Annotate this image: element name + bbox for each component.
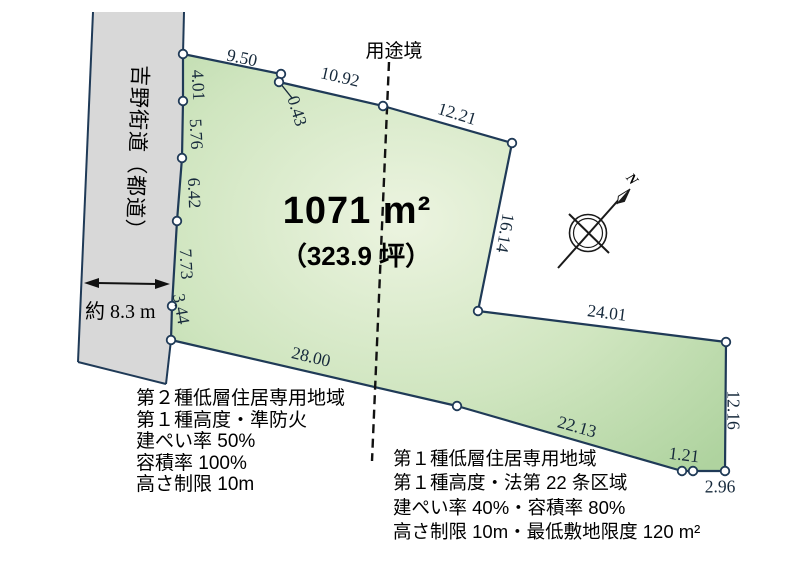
vertex-marker: [178, 154, 187, 163]
dim-left-1: 4.01: [187, 69, 210, 101]
zoning-left-line: 第２種低層住居専用地域: [136, 388, 345, 410]
vertex-marker: [179, 50, 188, 59]
vertex-marker: [173, 217, 182, 226]
vertex-marker: [508, 139, 517, 148]
vertex-marker: [275, 78, 284, 87]
vertex-marker: [453, 402, 462, 411]
area-sqm-label: 1071 m²: [257, 190, 457, 233]
dim-corner-bottom: 2.96: [705, 477, 736, 498]
zoning-left-line: 容積率 100%: [136, 453, 345, 475]
area-tsubo-label: （323.9 坪）: [256, 236, 456, 273]
road-width-label: 約 8.3 m: [85, 295, 156, 324]
vertex-marker: [379, 102, 388, 111]
zoning-right-line: 第１種低層住居専用地域: [393, 447, 700, 471]
road-right-edge-upper: [183, 12, 184, 54]
zoning-block-left: 第２種低層住居専用地域 第１種高度・準防火 建ぺい率 50% 容積率 100% …: [136, 388, 345, 496]
zoning-right-line: 建ぺい率 40%・容積率 80%: [393, 496, 700, 520]
vertex-marker: [167, 336, 176, 345]
use-district-boundary-label: 用途境: [344, 36, 444, 63]
site-plan-canvas: 吉野街道（都道） 約 8.3 m 用途境 N 1071 m² （323.9 坪）…: [0, 0, 800, 566]
vertex-marker: [722, 338, 731, 347]
dim-left-2: 5.76: [185, 118, 208, 150]
vertex-marker: [721, 467, 730, 476]
zoning-left-line: 高さ制限 10m: [136, 474, 345, 496]
zoning-right-line: 第１種高度・法第 22 条区域: [393, 471, 700, 495]
dim-left-3: 6.42: [183, 177, 205, 208]
zoning-right-line: 高さ制限 10m・最低敷地限度 120 m²: [393, 520, 700, 544]
dim-right-lower: 12.16: [723, 390, 744, 429]
compass-icon: [558, 189, 630, 268]
zoning-block-right: 第１種低層住居専用地域 第１種高度・法第 22 条区域 建ぺい率 40%・容積率…: [393, 447, 700, 544]
vertex-marker: [474, 307, 483, 316]
zoning-left-line: 第１種高度・準防火: [136, 410, 345, 432]
zoning-left-line: 建ぺい率 50%: [136, 431, 345, 453]
dim-left-4: 7.73: [175, 248, 198, 280]
vertex-marker: [179, 97, 188, 106]
